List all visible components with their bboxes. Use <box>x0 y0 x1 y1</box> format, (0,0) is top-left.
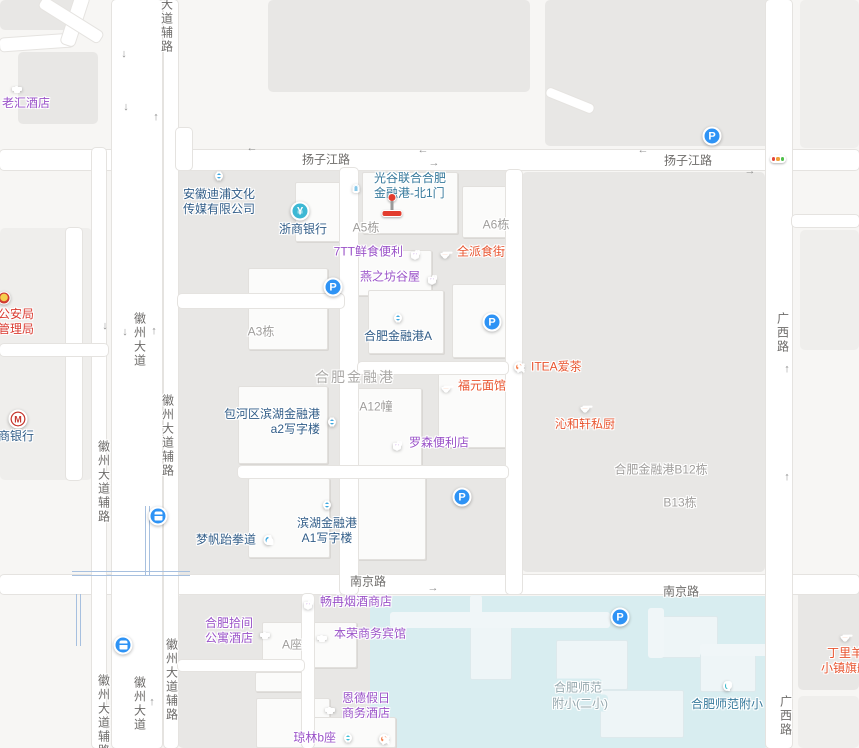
area-label: A3栋 <box>248 323 275 340</box>
mengfan-taekwondo-icon[interactable] <box>264 535 273 545</box>
a1-tower-label[interactable]: 滨湖金融港A1写字楼 <box>297 516 357 546</box>
area-label: 合肥师范 <box>554 679 602 696</box>
road-label: 徽州大道辅路 <box>96 674 113 748</box>
road-direction-arrow: ← <box>247 142 258 154</box>
hotel-glyph <box>262 635 268 639</box>
hotel-glyph <box>319 638 325 642</box>
a2-tower-icon[interactable] <box>328 418 336 427</box>
lawson-icon[interactable] <box>393 443 401 450</box>
zheshang-bank-label-line: 浙商银行 <box>279 222 327 237</box>
road-direction-arrow: ↓ <box>122 326 128 338</box>
road-direction-arrow: ↓ <box>123 101 129 113</box>
quanpai-food-label[interactable]: 全派食街 <box>457 245 505 260</box>
area-label: 附小(二小) <box>552 695 608 712</box>
public-security-bureau-label-line: 公安局 <box>0 307 34 322</box>
a2-tower-label[interactable]: 包河区滨湖金融港a2写字楼 <box>224 407 320 437</box>
cmb-bank-label[interactable]: 商银行 <box>0 429 34 444</box>
dipu-media-company-label-line: 安徽迪浦文化 <box>183 187 255 202</box>
changran-tobacco-label-line: 畅冉烟酒商店 <box>320 595 392 610</box>
marker-bar <box>382 210 403 217</box>
road-label: 南京路 <box>663 583 699 600</box>
city-block <box>800 230 859 350</box>
dipu-media-company-label[interactable]: 安徽迪浦文化传媒有限公司 <box>183 187 255 217</box>
shifan-fuxiao-icon[interactable] <box>723 681 731 691</box>
shifan-fuxiao-label[interactable]: 合肥师范附小 <box>691 697 763 712</box>
area-label: 合肥金融港 <box>315 367 395 387</box>
zheshang-bank-icon[interactable] <box>291 202 310 221</box>
shifan-fuxiao-label-line: 合肥师范附小 <box>691 697 763 712</box>
quanpai-food-label-line: 全派食街 <box>457 245 505 260</box>
public-security-bureau-label[interactable]: 公安局管理局 <box>0 307 34 337</box>
traffic-light-dot <box>772 157 775 160</box>
yanzhifang-icon[interactable] <box>428 277 436 284</box>
road-label: 徽州大道辅路 <box>160 394 177 478</box>
road-direction-arrow: ↓ <box>121 48 127 60</box>
itea-tea-icon[interactable] <box>514 362 524 372</box>
qionglin-b-icon[interactable] <box>344 734 352 743</box>
qinhexuan-label[interactable]: 沁和轩私厨 <box>555 417 615 432</box>
itea-tea-label-line: ITEA爱茶 <box>531 360 582 375</box>
shijian-hotel-icon[interactable] <box>260 633 270 637</box>
road <box>506 170 522 594</box>
road-label: 徽州大道 <box>132 676 149 732</box>
p-badge[interactable] <box>453 488 472 507</box>
road-direction-arrow: ↑ <box>784 471 790 483</box>
dipu-media-company-label-line: 传媒有限公司 <box>183 202 255 217</box>
benrong-hotel-label[interactable]: 本荣商务宾馆 <box>334 627 406 642</box>
benrong-hotel-label-line: 本荣商务宾馆 <box>334 627 406 642</box>
cmb-bank-icon[interactable] <box>9 410 28 429</box>
bus-badge[interactable] <box>149 507 168 526</box>
traffic-light-dot <box>776 157 779 160</box>
road-label: 广西路 <box>778 695 795 737</box>
yanzhifang-label-line: 燕之坊谷屋 <box>360 270 420 285</box>
bldg-glyph <box>217 172 221 181</box>
bldg-glyph <box>330 418 334 427</box>
7tt-store-label[interactable]: 7TT鲜食便利 <box>334 245 403 260</box>
gate-north1-label-line: 光谷联合合肥 <box>374 171 446 186</box>
road-label: 南京路 <box>350 573 386 590</box>
city-block <box>18 52 98 124</box>
qionglin-b-label[interactable]: 琼林b座 <box>293 731 336 746</box>
restaurant-unnamed-icon[interactable] <box>379 734 389 744</box>
a1-tower-icon[interactable] <box>323 501 331 510</box>
road <box>176 128 192 170</box>
mengfan-taekwondo-label[interactable]: 梦帆跆拳道 <box>196 533 256 548</box>
qinhexuan-label-line: 沁和轩私厨 <box>555 417 615 432</box>
road-label: 徽州大道 <box>132 312 149 368</box>
road-label: 扬子江路 <box>664 152 712 169</box>
road-direction-arrow: ↑ <box>153 111 159 123</box>
building <box>600 690 684 738</box>
bldg-glyph <box>325 501 329 510</box>
a2-tower-label-line: a2写字楼 <box>224 422 320 437</box>
hotel-glyph <box>327 710 333 714</box>
jinronggang-a-icon[interactable] <box>394 314 402 323</box>
metro-line <box>76 594 81 646</box>
fuyuan-noodle-label-line: 福元面馆 <box>458 379 506 394</box>
door-glyph <box>354 185 359 193</box>
fork-glyph <box>516 362 522 372</box>
shop-glyph <box>430 278 434 285</box>
a1-tower-label-line: 滨湖金融港 <box>297 516 357 531</box>
lawson-label[interactable]: 罗森便利店 <box>409 436 469 451</box>
p-badge[interactable] <box>324 278 343 297</box>
road-direction-arrow: ↓ <box>102 320 108 332</box>
laohui-hotel-label-line: 老汇酒店 <box>2 96 50 111</box>
shijian-hotel-label[interactable]: 合肥拾间公寓酒店 <box>205 616 253 646</box>
public-security-bureau-label-line: 管理局 <box>0 322 34 337</box>
fork-glyph <box>381 734 387 744</box>
ende-hotel-label-line: 恩德假日 <box>342 691 390 706</box>
p-badge[interactable] <box>703 127 722 146</box>
building <box>255 672 307 692</box>
road-direction-arrow: ← <box>418 144 429 156</box>
mengfan-taekwondo-label-line: 梦帆跆拳道 <box>196 533 256 548</box>
p-badge[interactable] <box>483 313 502 332</box>
lawson-label-line: 罗森便利店 <box>409 436 469 451</box>
ende-hotel-label[interactable]: 恩德假日商务酒店 <box>342 691 390 721</box>
benrong-hotel-icon[interactable] <box>317 636 327 640</box>
bldg-glyph <box>396 314 400 323</box>
road <box>178 294 344 308</box>
hotel-glyph <box>14 89 20 93</box>
road <box>164 0 178 748</box>
road-direction-arrow: ← <box>638 144 649 156</box>
road-label: 大道辅路 <box>159 0 176 54</box>
7tt-store-icon[interactable] <box>411 252 419 259</box>
a2-tower-label-line: 包河区滨湖金融港 <box>224 407 320 422</box>
building <box>368 290 444 354</box>
area-label: B13栋 <box>663 494 696 511</box>
road <box>238 466 508 478</box>
road-direction-arrow: ↑ <box>149 696 155 708</box>
yanzhifang-label[interactable]: 燕之坊谷屋 <box>360 270 420 285</box>
city-block <box>800 0 859 148</box>
shijian-hotel-label-line: 公寓酒店 <box>205 631 253 646</box>
road-label: 徽州大道辅路 <box>96 440 113 524</box>
tree-glyph <box>725 681 729 691</box>
road <box>792 215 859 227</box>
road <box>0 344 108 356</box>
qionglin-b-label-line: 琼林b座 <box>293 731 336 746</box>
laohui-hotel-icon[interactable] <box>12 87 22 91</box>
campus-path <box>700 644 768 656</box>
city-block <box>545 0 773 146</box>
jinronggang-a-label[interactable]: 合肥金融港A <box>364 329 432 344</box>
ende-hotel-icon[interactable] <box>325 708 335 712</box>
person-glyph <box>266 535 271 545</box>
selected-gate-marker[interactable] <box>382 193 403 217</box>
campus-path <box>470 595 482 619</box>
shop-glyph <box>413 253 417 260</box>
city-block <box>798 696 859 748</box>
road-direction-arrow: → <box>745 165 756 177</box>
road-label: 扬子江路 <box>302 151 350 168</box>
traffic-light-dot <box>781 157 784 160</box>
fuyuan-noodle-label[interactable]: 福元面馆 <box>458 379 506 394</box>
metro-line <box>72 571 190 576</box>
zheshang-bank-label[interactable]: 浙商银行 <box>279 222 327 237</box>
road-label: 广西路 <box>775 312 792 354</box>
area-label: A5栋 <box>353 219 380 236</box>
city-block <box>268 0 530 92</box>
dipu-media-company-icon[interactable] <box>215 172 223 181</box>
shop-glyph <box>395 444 399 451</box>
changran-tobacco-icon[interactable] <box>304 602 312 609</box>
road-direction-arrow: → <box>428 582 439 594</box>
ende-hotel-label-line: 商务酒店 <box>342 706 390 721</box>
dingliyang-label[interactable]: 丁里羊小镇旗舰 <box>821 646 859 676</box>
campus-path <box>648 608 664 658</box>
p-badge[interactable] <box>611 608 630 627</box>
map-canvas[interactable]: ←←→←→↓↓↑↓↓↑↑→↑↑扬子江路扬子江路南京路南京路徽州大道徽州大道辅路徽… <box>0 0 859 748</box>
a1-tower-label-line: A1写字楼 <box>297 531 357 546</box>
itea-tea-label[interactable]: ITEA爱茶 <box>531 360 582 375</box>
laohui-hotel-label[interactable]: 老汇酒店 <box>2 96 50 111</box>
dingliyang-label-line: 小镇旗舰 <box>821 661 859 676</box>
shop-glyph <box>306 603 310 610</box>
dingliyang-label-line: 丁里羊 <box>821 646 859 661</box>
road <box>178 660 304 671</box>
bus-glyph <box>119 641 127 650</box>
campus-path <box>390 612 610 628</box>
bus-glyph <box>154 512 162 521</box>
road-direction-arrow: ↑ <box>151 325 157 337</box>
shijian-hotel-label-line: 合肥拾间 <box>205 616 253 631</box>
road <box>302 594 314 748</box>
gate-north1-icon[interactable] <box>353 184 360 192</box>
changran-tobacco-label[interactable]: 畅冉烟酒商店 <box>320 595 392 610</box>
7tt-store-label-line: 7TT鲜食便利 <box>334 245 403 260</box>
road-label: 徽州大道辅路 <box>164 638 181 722</box>
bldg-glyph <box>346 734 350 743</box>
road-direction-arrow: → <box>429 157 440 169</box>
area-label: A6栋 <box>483 216 510 233</box>
cmb-bank-label-line: 商银行 <box>0 429 34 444</box>
area-label: A座 <box>282 636 302 653</box>
area-label: A12幢 <box>359 398 392 415</box>
traffic-light-icon <box>770 155 786 163</box>
bus-badge[interactable] <box>114 636 133 655</box>
jinronggang-a-label-line: 合肥金融港A <box>364 329 432 344</box>
road-direction-arrow: ↑ <box>784 363 790 375</box>
area-label: 合肥金融港B12栋 <box>614 461 707 478</box>
